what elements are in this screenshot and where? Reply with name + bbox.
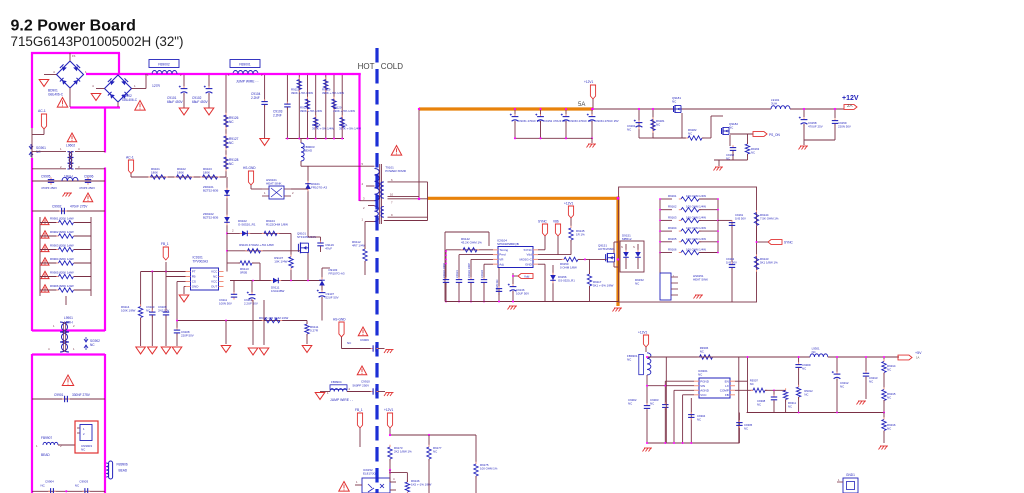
svg-text:MOSG-C: MOSG-C [519, 257, 532, 261]
svg-text:100 OHM 1/4W: 100 OHM 1/4W [686, 194, 706, 198]
svg-text:R9165: R9165 [668, 237, 677, 241]
svg-text:43.2K OHM 1%: 43.2K OHM 1% [461, 241, 482, 245]
svg-text:4: 4 [92, 84, 94, 88]
svg-text:2.2UF 50V: 2.2UF 50V [244, 302, 258, 306]
svg-text:C9154 470UF 25V: C9154 470UF 25V [596, 119, 619, 123]
svg-text:+12V1: +12V1 [384, 408, 394, 412]
svg-text:4: 4 [78, 147, 80, 151]
svg-text:470UF 25V: 470UF 25V [808, 125, 823, 129]
svg-text:1: 1 [673, 275, 675, 278]
svg-text:68uF 450V: 68uF 450V [192, 100, 208, 104]
svg-text:C9131: C9131 [455, 270, 459, 278]
svg-text:L9602: L9602 [66, 144, 75, 148]
svg-text:VR: VR [499, 257, 504, 261]
svg-text:R9903 820K 1/4W: R9903 820K 1/4W [50, 244, 74, 248]
svg-text:2: 2 [349, 387, 351, 391]
svg-text:NC: NC [672, 100, 677, 104]
svg-text:C9135 NC: C9135 NC [495, 279, 499, 292]
svg-text:NC: NC [804, 392, 808, 396]
svg-text:BZT52-B36: BZT52-B36 [203, 189, 219, 193]
svg-text:2: 2 [363, 206, 365, 210]
svg-text:NC: NC [697, 417, 701, 421]
svg-text:R9106 47OHM +-5% 1/8W: R9106 47OHM +-5% 1/8W [239, 243, 274, 247]
svg-text:EL817(X): EL817(X) [363, 472, 376, 476]
svg-text:1: 1 [134, 84, 136, 88]
svg-text:5A: 5A [578, 102, 585, 108]
svg-text:NC: NC [81, 448, 86, 452]
svg-text:1: 1 [838, 478, 840, 482]
svg-text:NC: NC [729, 126, 734, 130]
svg-text:NC: NC [41, 484, 46, 488]
svg-text:NC: NC [700, 350, 704, 354]
svg-text:NC: NC [887, 368, 891, 372]
svg-text:NC: NC [869, 380, 873, 384]
svg-text:100 OHM 1/4W: 100 OHM 1/4W [686, 248, 706, 252]
svg-text:PGND: PGND [700, 379, 710, 383]
svg-text:NC: NC [840, 385, 844, 389]
svg-text:6: 6 [391, 178, 393, 182]
svg-text:FB9907: FB9907 [41, 436, 52, 440]
svg-text:FR107G-A3: FR107G-A3 [329, 272, 345, 276]
svg-text:+12V1: +12V1 [564, 202, 574, 206]
svg-text:AGND: AGND [700, 388, 710, 392]
svg-text:NC: NC [213, 275, 218, 279]
svg-text:FB9906: FB9906 [117, 463, 128, 467]
svg-text:EN: EN [725, 379, 729, 383]
svg-text:FB: FB [192, 275, 196, 279]
svg-text:G-S0520_R1: G-S0520_R1 [238, 223, 256, 227]
svg-text:100 OHM 1/4W: 100 OHM 1/4W [686, 226, 706, 230]
svg-text:GBL406-C: GBL406-C [122, 98, 138, 102]
svg-text:C9906: C9906 [84, 175, 94, 179]
svg-text:NC: NC [887, 427, 891, 431]
svg-text:BEAD: BEAD [119, 469, 128, 473]
svg-text:47uF: 47uF [325, 247, 332, 251]
svg-text:4: 4 [362, 182, 364, 186]
svg-text:VCC: VCC [211, 280, 218, 284]
svg-text:V86: V86 [553, 220, 559, 224]
svg-text:BZT52-B36: BZT52-B36 [203, 216, 219, 220]
svg-text:Adj: Adj [499, 262, 504, 266]
svg-text:1: 1 [83, 427, 85, 431]
svg-text:C9132 100P: C9132 100P [442, 263, 446, 278]
svg-text:NC: NC [229, 120, 234, 124]
svg-text:R9164: R9164 [668, 226, 677, 230]
svg-text:NC: NC [750, 382, 754, 386]
svg-text:R9163: R9163 [668, 215, 677, 219]
svg-text:NC: NC [627, 358, 632, 362]
svg-text:NC: NC [635, 282, 640, 286]
svg-text:FB_1: FB_1 [355, 408, 363, 412]
svg-text:FB9002: FB9002 [158, 63, 170, 67]
svg-text:NC: NC [788, 404, 792, 408]
svg-text:AC-1: AC-1 [126, 156, 134, 160]
svg-text:NC: NC [229, 141, 234, 145]
svg-text:330NF 275V: 330NF 275V [72, 393, 91, 397]
svg-text:NC: NC [698, 373, 703, 377]
svg-text:390K +-5% 1/4W: 390K +-5% 1/4W [312, 127, 334, 131]
svg-text:R9906 820K 1/4W: R9906 820K 1/4W [50, 284, 74, 288]
svg-text:180K: 180K [177, 171, 184, 175]
svg-text:SYNC: SYNC [523, 248, 532, 252]
svg-text:FB9904: FB9904 [331, 380, 342, 384]
svg-text:100 OHM 1/4W: 100 OHM 1/4W [686, 215, 706, 219]
svg-text:470PF 250V: 470PF 250V [79, 186, 95, 190]
svg-text:TPV002A3: TPV002A3 [193, 259, 209, 263]
svg-text:R9105 470 OHM 1/4W: R9105 470 OHM 1/4W [259, 316, 289, 320]
svg-text:2.2NF: 2.2NF [273, 113, 282, 117]
svg-text:C9133 100P: C9133 100P [467, 263, 471, 278]
svg-text:4: 4 [393, 477, 395, 481]
svg-text:3: 3 [363, 197, 365, 201]
svg-text:N: N [621, 246, 623, 249]
svg-text:NC: NC [688, 132, 692, 136]
svg-text:1N4148W: 1N4148W [271, 289, 285, 293]
svg-text:Timing: Timing [499, 248, 508, 252]
svg-text:1K5 +-1% 1/8W: 1K5 +-1% 1/8W [411, 483, 432, 487]
svg-text:180K: 180K [151, 171, 158, 175]
svg-text:COLD: COLD [381, 62, 403, 71]
svg-text:N: N [633, 246, 635, 249]
svg-text:560PF 250V: 560PF 250V [353, 383, 370, 387]
svg-text:NC: NC [744, 426, 748, 430]
svg-text:2: 2 [83, 432, 85, 436]
svg-text:1: 1 [60, 147, 62, 151]
svg-text:NC: NC [628, 402, 632, 406]
svg-text:HOT: HOT [358, 62, 375, 71]
svg-text:R122OHM 1/8W: R122OHM 1/8W [266, 223, 288, 227]
svg-text:JUMP WIRE - -: JUMP WIRE - - [236, 80, 258, 84]
svg-text:100 OHM 1/4W: 100 OHM 1/4W [686, 205, 706, 209]
svg-text:CS: CS [192, 280, 196, 284]
svg-text:VIN: VIN [700, 384, 705, 388]
svg-text:FR107G-A3: FR107G-A3 [311, 186, 327, 190]
svg-text:1: 1 [73, 347, 75, 351]
svg-text:HS-GND: HS-GND [243, 166, 256, 170]
svg-text:SYNC: SYNC [784, 241, 794, 245]
svg-text:NC: NC [75, 484, 80, 488]
svg-text:2: 2 [232, 229, 234, 233]
svg-text:C9901: C9901 [54, 393, 64, 397]
svg-text:390K +-5% 1/4W: 390K +-5% 1/4W [339, 127, 361, 131]
svg-text:0R05: 0R05 [240, 271, 248, 275]
svg-text:1: 1 [362, 218, 364, 222]
svg-text:C9902: C9902 [52, 205, 62, 209]
svg-text:10UF 50V: 10UF 50V [516, 292, 529, 296]
svg-text:FB: FB [725, 393, 729, 397]
svg-text:1: 1 [356, 480, 358, 484]
svg-text:5K1 1/8W 1%: 5K1 1/8W 1% [760, 261, 778, 265]
svg-text:JUMP WIRE - -: JUMP WIRE - - [330, 398, 353, 402]
svg-text:NC: NC [90, 343, 95, 347]
svg-text:NC: NC [802, 367, 806, 371]
svg-text:GBL406-C: GBL406-C [48, 92, 64, 96]
svg-text:+12V: +12V [842, 95, 859, 102]
svg-text:180K: 180K [203, 171, 210, 175]
svg-text:2: 2 [73, 324, 75, 328]
svg-text:R9166: R9166 [668, 248, 677, 252]
svg-text:HEAT SINK: HEAT SINK [266, 182, 282, 186]
svg-text:SP6018SBRQB: SP6018SBRQB [497, 242, 519, 246]
svg-text:R9901 820K 1/4W: R9901 820K 1/4W [50, 217, 74, 221]
svg-text:3UH: 3UH [771, 102, 777, 106]
svg-text:AC-1: AC-1 [38, 109, 46, 113]
svg-text:HS-GND: HS-GND [333, 318, 346, 322]
svg-text:GND: GND [525, 262, 533, 266]
svg-text:2: 2 [292, 191, 294, 195]
svg-text:1A: 1A [916, 356, 920, 360]
svg-text:NC: NC [751, 150, 755, 154]
svg-text:7: 7 [391, 201, 393, 205]
svg-text:Vdd: Vdd [526, 253, 532, 257]
svg-text:100 OHM 1%: 100 OHM 1% [480, 467, 498, 471]
svg-text:R9902 820K 1/4W: R9902 820K 1/4W [50, 230, 74, 234]
svg-text:+5V: +5V [915, 351, 922, 355]
svg-text:PT: PT [192, 270, 196, 274]
svg-text:715G6143P01005002H (32"): 715G6143P01005002H (32") [11, 34, 184, 49]
svg-text:NC: NC [650, 402, 654, 406]
svg-text:2N2 50V: 2N2 50V [158, 309, 169, 313]
svg-text:NC: NC [146, 309, 150, 313]
svg-text:VCC: VCC [211, 270, 218, 274]
svg-text:FS: FS [72, 54, 76, 58]
svg-text:OUT: OUT [211, 285, 218, 289]
svg-text:7.5K OHM 1%: 7.5K OHM 1% [760, 217, 779, 221]
svg-text:NC: NC [433, 450, 437, 454]
svg-text:GND: GND [192, 285, 200, 289]
svg-text:NC: NC [229, 162, 234, 166]
svg-text:R9162: R9162 [668, 205, 677, 209]
svg-text:220N 50V: 220N 50V [838, 125, 851, 129]
svg-text:9: 9 [391, 213, 393, 217]
svg-text:100 OHM 1/4W: 100 OHM 1/4W [686, 237, 706, 241]
svg-text:220P 50V: 220P 50V [181, 334, 194, 338]
svg-text:Vdd: Vdd [524, 275, 530, 279]
svg-text:2A: 2A [847, 103, 853, 108]
svg-text:1R 1%: 1R 1% [576, 233, 585, 237]
svg-text:2.2NF: 2.2NF [251, 96, 260, 100]
svg-text:NC: NC [627, 128, 631, 132]
svg-text:1N5 50V: 1N5 50V [726, 260, 737, 264]
svg-text:GS-0520_R1: GS-0520_R1 [558, 279, 575, 283]
svg-text:C9903: C9903 [79, 479, 88, 483]
svg-text:NC: NC [812, 350, 816, 354]
svg-text:MB512: MB512 [622, 237, 632, 241]
svg-text:LX: LX [725, 384, 729, 388]
svg-text:390K +-5% 1/4W: 390K +-5% 1/4W [333, 109, 355, 113]
svg-text:390K +-5% 1/4W: 390K +-5% 1/4W [322, 91, 344, 95]
svg-text:SYNC: SYNC [538, 220, 548, 224]
svg-text:FB9001: FB9001 [239, 63, 251, 67]
svg-text:R9905 820K 1/4W: R9905 820K 1/4W [50, 271, 74, 275]
svg-text:100K 1/8W: 100K 1/8W [121, 309, 136, 313]
svg-text:C9905: C9905 [41, 175, 51, 179]
svg-text:10: 10 [390, 192, 394, 196]
svg-text:10K 1/4W: 10K 1/4W [274, 260, 287, 264]
svg-text:HEAT SINK: HEAT SINK [693, 278, 708, 282]
svg-text:470nF 275V: 470nF 275V [70, 205, 88, 209]
svg-text:4: 4 [53, 70, 55, 74]
svg-text:390K +-5% 1/4W: 390K +-5% 1/4W [300, 109, 322, 113]
svg-text:L9901: L9901 [64, 316, 73, 320]
svg-text:C9909: C9909 [360, 338, 369, 342]
svg-text:+12V1: +12V1 [638, 331, 648, 335]
svg-text:4R7 1/4W: 4R7 1/4W [352, 244, 366, 248]
svg-text:NC: NC [887, 396, 891, 400]
svg-text:FB_1: FB_1 [161, 242, 169, 246]
svg-text:POWER XFMR: POWER XFMR [385, 169, 406, 173]
svg-text:4: 4 [48, 347, 50, 351]
svg-text:390K +-5% 1/4W: 390K +-5% 1/4W [291, 91, 313, 95]
svg-text:470PF 250V: 470PF 250V [41, 186, 57, 190]
svg-text:COMP: COMP [720, 388, 729, 392]
svg-text:R9161: R9161 [668, 194, 677, 198]
svg-text:NC: NC [757, 402, 761, 406]
svg-text:0.27R: 0.27R [310, 329, 319, 333]
svg-text:22UF 50V: 22UF 50V [326, 296, 339, 300]
svg-text:BEAD: BEAD [41, 453, 50, 457]
svg-text:Pred: Pred [499, 253, 506, 257]
svg-text:100N 50V: 100N 50V [219, 302, 232, 306]
svg-text:1N5 50V: 1N5 50V [735, 216, 746, 220]
svg-text:+12V1: +12V1 [584, 80, 594, 84]
svg-text:R9904 820K 1/4W: R9904 820K 1/4W [50, 257, 74, 261]
svg-text:BEAD: BEAD [304, 149, 313, 153]
svg-text:127R: 127R [152, 84, 161, 88]
svg-text:GND1: GND1 [846, 473, 855, 477]
svg-text:VCC: VCC [700, 393, 707, 397]
svg-text:C9134: C9134 [480, 270, 484, 278]
svg-text:0 OHM 1/8W: 0 OHM 1/8W [560, 266, 577, 270]
svg-text:2K2 1/8W 1%: 2K2 1/8W 1% [394, 450, 412, 454]
svg-text:AOTF2N60L: AOTF2N60L [598, 247, 615, 251]
svg-text:68uF 450V: 68uF 450V [167, 100, 183, 104]
svg-text:C9904: C9904 [45, 479, 54, 483]
svg-text:NC: NC [656, 123, 660, 127]
svg-text:5: 5 [362, 162, 364, 166]
svg-text:5K1 +-5% 1/8W: 5K1 +-5% 1/8W [593, 284, 614, 288]
svg-text:NC: NC [347, 341, 352, 345]
svg-text:9.2 Power Board: 9.2 Power Board [11, 18, 136, 35]
svg-text:1: 1 [264, 191, 266, 195]
svg-text:PS_ON: PS_ON [769, 133, 781, 137]
svg-text:1: 1 [36, 444, 38, 448]
svg-text:1: 1 [53, 324, 55, 328]
